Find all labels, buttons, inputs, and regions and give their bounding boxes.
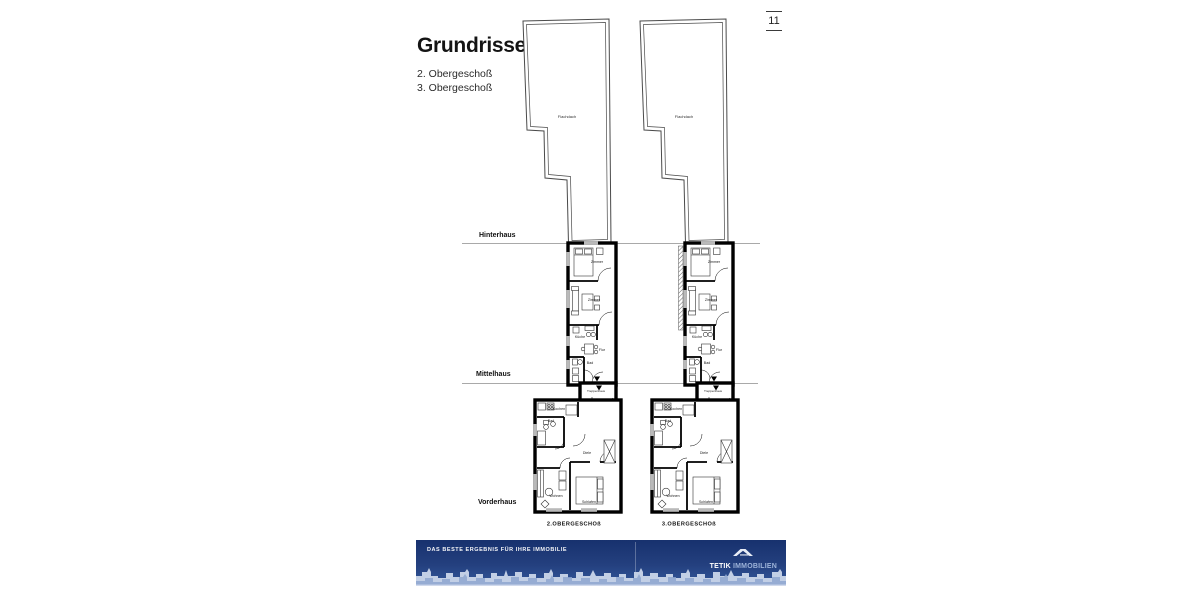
room-label-schlafen: Schlafen <box>699 500 713 504</box>
room-label-wohnen: Wohnen <box>549 494 562 498</box>
room-label-zimmer-a: Zimmer <box>708 260 721 264</box>
section-label-vorderhaus: Vorderhaus <box>478 499 516 506</box>
room-label-flachdach: Flachdach <box>675 114 693 119</box>
room-label-bad-og: Bad <box>704 361 710 365</box>
brand-secondary: IMMOBILIEN <box>733 563 777 570</box>
plan-caption-2og: 2.OBERGESCHOß <box>547 522 601 528</box>
room-label-flur: Flur <box>716 348 723 352</box>
roof-icon <box>731 547 755 557</box>
room-label-zimmer-b: Zimmer <box>588 298 601 302</box>
room-label-flur: Flur <box>599 348 606 352</box>
brand-text: TETIK IMMOBILIEN <box>710 563 777 570</box>
room-label-zimmer-a: Zimmer <box>591 260 604 264</box>
room-label-kueche: Küche <box>692 335 702 339</box>
room-label-zimmer-b: Zimmer <box>705 298 718 302</box>
footer-banner: DAS BESTE ERGEBNIS FÜR IHRE IMMOBILIE TE… <box>416 540 786 586</box>
room-label-flachdach: Flachdach <box>558 114 576 119</box>
floorplan-drawing: Hinterhaus Mittelhaus Vorderhaus <box>0 0 1200 600</box>
floorplan-geometry-3og <box>640 19 738 512</box>
room-label-kochen: Kochen <box>553 407 565 411</box>
brand-logo: TETIK IMMOBILIEN <box>710 544 777 570</box>
brand-primary: TETIK <box>710 563 731 570</box>
footer-divider <box>635 542 636 572</box>
room-label-bad-og: Bad <box>587 361 593 365</box>
hatched-wall-strip-3og <box>679 246 684 330</box>
roof-outline <box>523 19 611 244</box>
section-label-mittelhaus: Mittelhaus <box>476 371 511 378</box>
room-label-diele: Diele <box>583 451 591 455</box>
room-label-treppenhaus: Treppenhaus <box>704 389 723 393</box>
room-label-kochen: Kochen <box>670 407 682 411</box>
room-label-schlafen: Schlafen <box>582 500 596 504</box>
vorderhaus-apartment <box>533 400 621 512</box>
floorplan-geometry-2og <box>523 19 621 512</box>
plan-caption-3og: 3.OBERGESCHOß <box>662 522 716 528</box>
section-label-hinterhaus: Hinterhaus <box>479 232 516 239</box>
room-label-diele: Diele <box>700 451 708 455</box>
wardrobe <box>604 440 615 463</box>
room-label-treppenhaus: Treppenhaus <box>587 389 606 393</box>
footer-tagline: DAS BESTE ERGEBNIS FÜR IHRE IMMOBILIE <box>427 547 567 553</box>
room-label-wohnen: Wohnen <box>666 494 679 498</box>
room-label-bad-vh: Bad <box>665 419 671 423</box>
page: { "page": { "number": "11", "background"… <box>0 0 1200 600</box>
room-label-bad-vh: Bad <box>548 419 554 423</box>
room-label-kueche: Küche <box>575 335 585 339</box>
